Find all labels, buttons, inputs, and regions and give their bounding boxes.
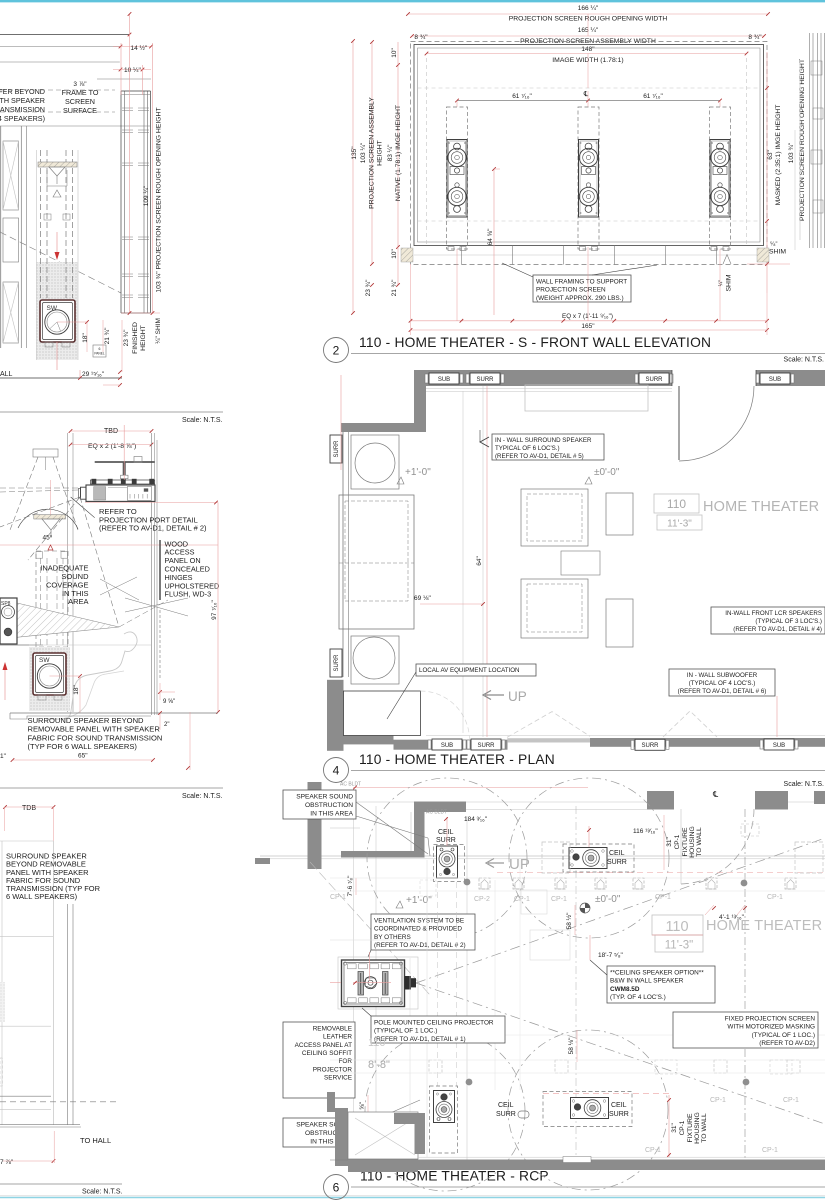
svg-text:℄: ℄ xyxy=(712,790,719,799)
svg-text:61 ⁷⁄₁₆": 61 ⁷⁄₁₆" xyxy=(643,93,663,100)
svg-text:116 ¹³⁄₁₆": 116 ¹³⁄₁₆" xyxy=(633,828,658,835)
svg-text:CEILING SOFFIT: CEILING SOFFIT xyxy=(302,1050,352,1057)
svg-text:TDB: TDB xyxy=(22,805,36,812)
svg-text:MASKED (2.35:1) IMGE HEIGHT: MASKED (2.35:1) IMGE HEIGHT xyxy=(775,105,782,206)
svg-text:CEIL: CEIL xyxy=(609,850,625,857)
svg-text:¼": ¼" xyxy=(719,280,725,287)
svg-text:TO WALL: TO WALL xyxy=(696,827,703,857)
svg-text:SURR: SURR xyxy=(641,743,659,749)
svg-text:SUB: SUB xyxy=(441,743,453,749)
svg-text:(TYP FOR 6 WALL SPEAKERS): (TYP FOR 6 WALL SPEAKERS) xyxy=(28,742,138,751)
svg-text:61 ⁷⁄₁₆": 61 ⁷⁄₁₆" xyxy=(512,93,532,100)
svg-text:HEIGHT: HEIGHT xyxy=(140,325,147,351)
svg-text:±0'-0": ±0'-0" xyxy=(595,894,621,905)
svg-text:64": 64" xyxy=(476,556,483,566)
svg-text:FABRIC FOR SOUND TRANSMISSION: FABRIC FOR SOUND TRANSMISSION xyxy=(28,733,163,742)
svg-text:(REFER TO AV-D1, DETAIL # 2): (REFER TO AV-D1, DETAIL # 2) xyxy=(99,524,207,533)
svg-text:AREA: AREA xyxy=(68,597,88,606)
svg-text:IN - WALL SURROUND SPEAKER: IN - WALL SURROUND SPEAKER xyxy=(495,437,592,444)
svg-text:18": 18" xyxy=(82,333,89,343)
svg-text:31": 31" xyxy=(671,1123,678,1133)
svg-text:Scale: N.T.S.: Scale: N.T.S. xyxy=(784,357,825,364)
svg-text:CP-1: CP-1 xyxy=(330,894,346,901)
svg-text:110 - HOME THEATER - S - FRONT: 110 - HOME THEATER - S - FRONT WALL ELEV… xyxy=(359,335,711,350)
svg-text:HOME THEATER: HOME THEATER xyxy=(706,918,822,934)
svg-text:CP-1: CP-1 xyxy=(674,834,681,849)
svg-text:HOUSING: HOUSING xyxy=(694,1112,701,1144)
svg-text:PROJECTOR: PROJECTOR xyxy=(313,1066,353,1073)
svg-text:6: 6 xyxy=(99,347,101,351)
svg-text:(TYPICAL OF 3 LOC'S.): (TYPICAL OF 3 LOC'S.) xyxy=(755,618,822,625)
svg-text:21 ¾": 21 ¾" xyxy=(391,279,398,296)
svg-text:(REFER TO AV-D1, DETAIL # 5): (REFER TO AV-D1, DETAIL # 5) xyxy=(495,453,584,460)
svg-text:165 ¼": 165 ¼" xyxy=(578,27,599,34)
svg-text:FINISHED: FINISHED xyxy=(132,322,139,354)
svg-text:FRAME TO: FRAME TO xyxy=(62,88,99,97)
svg-text:Scale: N.T.S.: Scale: N.T.S. xyxy=(182,793,223,800)
svg-text:SURR: SURR xyxy=(334,440,340,458)
svg-text:CP-1: CP-1 xyxy=(783,1097,799,1104)
svg-text:4: 4 xyxy=(333,764,340,778)
svg-text:SURR: SURR xyxy=(477,743,495,749)
svg-text:SURR: SURR xyxy=(496,1111,516,1118)
svg-text:LEATHER: LEATHER xyxy=(323,1034,352,1041)
svg-text:(TYPICAL OF 1 LOC.): (TYPICAL OF 1 LOC.) xyxy=(752,1032,815,1039)
svg-text:CP-2: CP-2 xyxy=(474,896,490,903)
svg-text:(REFER TO AV-D1, DETAIL # 4): (REFER TO AV-D1, DETAIL # 4) xyxy=(733,626,822,633)
svg-text:(REFER TO AV-D1, DETAIL # 2): (REFER TO AV-D1, DETAIL # 2) xyxy=(374,942,466,949)
svg-text:23 ¾": 23 ¾" xyxy=(365,279,372,296)
svg-text:110 - HOME THEATER - PLAN: 110 - HOME THEATER - PLAN xyxy=(359,752,555,767)
svg-text:CP-1: CP-1 xyxy=(710,1097,726,1104)
svg-text:103 ¼": 103 ¼" xyxy=(360,142,367,163)
svg-text:SW: SW xyxy=(47,305,58,312)
svg-text:+1'-0": +1'-0" xyxy=(405,467,431,478)
svg-text:14 ½": 14 ½" xyxy=(131,44,148,52)
svg-text:Scale: N.T.S.: Scale: N.T.S. xyxy=(82,1189,123,1196)
svg-text:FIXTURE: FIXTURE xyxy=(682,827,689,857)
svg-text:AC BLDT: AC BLDT xyxy=(426,810,447,816)
svg-text:8'-8": 8'-8" xyxy=(368,1059,390,1071)
svg-text:HOME THEATER: HOME THEATER xyxy=(703,499,819,515)
svg-text:7 ⅞": 7 ⅞" xyxy=(0,1159,14,1166)
svg-text:2: 2 xyxy=(333,344,340,358)
svg-text:HOUSING: HOUSING xyxy=(689,826,696,858)
svg-text:SURR: SURR xyxy=(645,377,663,383)
svg-text:UP: UP xyxy=(509,856,530,873)
svg-text:(TYP. OF 4 LOC'S.): (TYP. OF 4 LOC'S.) xyxy=(610,994,666,1001)
svg-text:166 ¼": 166 ¼" xyxy=(578,5,599,12)
svg-text:SURROUND SPEAKER BEYOND: SURROUND SPEAKER BEYOND xyxy=(28,716,145,725)
svg-text:21 ¾": 21 ¾" xyxy=(104,327,111,344)
svg-text:POLE MOUNTED CEILING PROJECTOR: POLE MOUNTED CEILING PROJECTOR xyxy=(374,1019,494,1026)
svg-text:COORDINATED & PROVIDED: COORDINATED & PROVIDED xyxy=(374,926,462,933)
svg-text:EQ x 7 (1'-11 ⁹⁄₁₆"): EQ x 7 (1'-11 ⁹⁄₁₆") xyxy=(562,313,613,320)
svg-text:LOCAL AV EQUIPMENT LOCATION: LOCAL AV EQUIPMENT LOCATION xyxy=(419,667,520,674)
svg-text:18": 18" xyxy=(73,685,80,695)
svg-text:OBSTRUCTION: OBSTRUCTION xyxy=(305,802,353,809)
svg-text:SURR: SURR xyxy=(476,377,494,383)
svg-text:Scale: N.T.S.: Scale: N.T.S. xyxy=(784,781,825,788)
svg-text:18'-7 ⁵⁄₈": 18'-7 ⁵⁄₈" xyxy=(598,952,624,959)
svg-text:64 ⅝": 64 ⅝" xyxy=(487,228,494,245)
svg-text:58 ½": 58 ½" xyxy=(565,912,573,929)
svg-text:CP-1: CP-1 xyxy=(514,896,530,903)
svg-text:97 ⁷⁄₁₆": 97 ⁷⁄₁₆" xyxy=(211,600,218,620)
svg-text:CEIL: CEIL xyxy=(498,1102,514,1109)
svg-text:110: 110 xyxy=(667,497,686,511)
svg-text:SUB: SUB xyxy=(769,377,781,383)
svg-text:ITH SPEAKER: ITH SPEAKER xyxy=(0,96,45,105)
svg-text:VENTILATION SYSTEM TO BE: VENTILATION SYSTEM TO BE xyxy=(374,917,464,924)
svg-text:184 ³⁄₁₆": 184 ³⁄₁₆" xyxy=(464,816,488,823)
svg-text:SURFACE: SURFACE xyxy=(63,106,97,115)
svg-text:10 ¼": 10 ¼" xyxy=(124,67,141,74)
svg-text:SURR: SURR xyxy=(609,1111,629,1118)
svg-text:EQ x 2 (1'-8 ⅞"): EQ x 2 (1'-8 ⅞") xyxy=(88,443,136,450)
svg-text:IN - WALL SUBWOOFER: IN - WALL SUBWOOFER xyxy=(687,672,758,679)
svg-text:6 WALL SPEAKERS): 6 WALL SPEAKERS) xyxy=(6,892,78,901)
svg-text:(REFER TO AV-D2): (REFER TO AV-D2) xyxy=(759,1040,815,1047)
svg-text:HEIGHT: HEIGHT xyxy=(377,140,384,166)
svg-text:29 ¹⁵⁄₁₆": 29 ¹⁵⁄₁₆" xyxy=(82,371,105,378)
svg-text:TBD: TBD xyxy=(104,428,118,435)
svg-text:CP-1: CP-1 xyxy=(645,1147,661,1154)
svg-text:165": 165" xyxy=(581,323,595,330)
svg-text:IN THIS AREA: IN THIS AREA xyxy=(310,810,353,817)
svg-text:REMOVABLE PANEL WITH SPEAKER: REMOVABLE PANEL WITH SPEAKER xyxy=(28,725,161,734)
svg-text:11'-3": 11'-3" xyxy=(665,940,693,952)
svg-text:B&W IN WALL SPEAKER: B&W IN WALL SPEAKER xyxy=(610,978,684,985)
svg-text:CEIL: CEIL xyxy=(438,829,454,836)
svg-text:PROJECTION SCREEN: PROJECTION SCREEN xyxy=(536,287,606,294)
svg-text:(TYPICAL OF 4 LOC'S.): (TYPICAL OF 4 LOC'S.) xyxy=(689,680,756,687)
svg-text:CP-1: CP-1 xyxy=(679,1120,686,1135)
svg-text:SHIM: SHIM xyxy=(726,274,733,291)
svg-text:TYPICAL OF 6 LOC'S.): TYPICAL OF 6 LOC'S.) xyxy=(495,445,560,452)
svg-text:63": 63" xyxy=(767,150,774,160)
svg-text:1": 1" xyxy=(0,753,7,760)
svg-text:CP-1: CP-1 xyxy=(762,1147,778,1154)
svg-text:OFER BEYOND: OFER BEYOND xyxy=(0,87,45,96)
svg-text:135": 135" xyxy=(351,146,358,160)
svg-text:10": 10" xyxy=(391,249,398,259)
svg-text:**CEILING SPEAKER OPTION**: **CEILING SPEAKER OPTION** xyxy=(610,969,704,976)
svg-text:SURR: SURR xyxy=(607,859,627,866)
svg-text:SPEAKER SOUND: SPEAKER SOUND xyxy=(296,794,353,801)
svg-text:CP-1: CP-1 xyxy=(767,894,783,901)
svg-text:CWM8.5D: CWM8.5D xyxy=(610,986,640,993)
svg-text:CP-1: CP-1 xyxy=(655,894,671,901)
svg-text:AC BLDT: AC BLDT xyxy=(340,782,361,788)
svg-text:(REFER TO AV-D1, DETAIL # 6): (REFER TO AV-D1, DETAIL # 6) xyxy=(678,688,767,695)
svg-text:PANEL: PANEL xyxy=(94,352,104,356)
svg-text:FLUSH, WD-3: FLUSH, WD-3 xyxy=(165,590,212,599)
svg-text:6: 6 xyxy=(333,1181,340,1195)
svg-text:¼" SHIM: ¼" SHIM xyxy=(155,318,162,344)
svg-text:SP8: SP8 xyxy=(1,601,11,607)
svg-text:109 ¼": 109 ¼" xyxy=(143,185,150,206)
svg-text:110: 110 xyxy=(665,919,688,935)
svg-text:FOR: FOR xyxy=(339,1058,353,1065)
svg-text:NATIVE (1.78:1) IMGE HEIGHT: NATIVE (1.78:1) IMGE HEIGHT xyxy=(395,105,402,201)
svg-text:58 ⅛": 58 ⅛" xyxy=(568,1037,575,1054)
svg-text:69 ⅛": 69 ⅛" xyxy=(414,595,431,602)
svg-text:PROJECTION SCREEN ASSEMBLY: PROJECTION SCREEN ASSEMBLY xyxy=(369,97,376,209)
svg-text:SURR: SURR xyxy=(436,837,456,844)
svg-text:9 ⅝": 9 ⅝" xyxy=(163,699,175,705)
svg-text:(REFER TO AV-D1, DETAIL # 1): (REFER TO AV-D1, DETAIL # 1) xyxy=(374,1036,466,1043)
svg-text:±0'-0": ±0'-0" xyxy=(594,467,620,478)
svg-text:⁵⁄₈": ⁵⁄₈" xyxy=(770,241,777,248)
svg-text:SERVICE: SERVICE xyxy=(324,1075,352,1082)
svg-text:SUB: SUB xyxy=(438,377,450,383)
svg-text:110: 110 xyxy=(368,1037,386,1049)
svg-text:TO WALL: TO WALL xyxy=(701,1113,708,1143)
svg-text:SURR: SURR xyxy=(334,654,340,672)
svg-text:8 ¾": 8 ¾" xyxy=(414,34,428,41)
svg-text:SW: SW xyxy=(39,657,50,664)
svg-text:103 ¾": 103 ¾" xyxy=(788,142,795,163)
svg-text:8 ¾": 8 ¾" xyxy=(748,34,762,41)
svg-text:TO HALL: TO HALL xyxy=(80,1136,111,1145)
svg-text:SUB: SUB xyxy=(773,743,785,749)
svg-text:WALL FRAMING TO SUPPORT: WALL FRAMING TO SUPPORT xyxy=(536,278,627,285)
svg-text:CP-1: CP-1 xyxy=(551,896,567,903)
svg-text:ALL: ALL xyxy=(0,371,13,378)
svg-text:(TYPICAL OF 1 LOC.): (TYPICAL OF 1 LOC.) xyxy=(374,1028,437,1035)
svg-text:65": 65" xyxy=(78,753,88,760)
svg-text:REMOVABLE: REMOVABLE xyxy=(313,1025,352,1032)
svg-text:(WEIGHT APPROX. 290 LBS.): (WEIGHT APPROX. 290 LBS.) xyxy=(536,295,624,302)
svg-text:CEIL: CEIL xyxy=(611,1102,627,1109)
svg-text:103 ¾" PROJECTION SCREEN ROUG: 103 ¾" PROJECTION SCREEN ROUGH OPENING H… xyxy=(156,107,163,292)
svg-text:2": 2" xyxy=(164,722,169,728)
svg-text:SHIM: SHIM xyxy=(769,249,786,256)
svg-text:ACCESS PANEL AT: ACCESS PANEL AT xyxy=(295,1042,353,1049)
svg-text:10": 10" xyxy=(391,48,398,58)
svg-text:FIXTURE: FIXTURE xyxy=(687,1113,694,1143)
svg-text:FIXED PROJECTION SCREEN: FIXED PROJECTION SCREEN xyxy=(725,1015,816,1022)
svg-text:RANSMISSION: RANSMISSION xyxy=(0,105,45,114)
svg-text:4 SPEAKERS): 4 SPEAKERS) xyxy=(0,114,45,123)
svg-text:3 ⅞": 3 ⅞" xyxy=(73,81,87,88)
svg-text:UP: UP xyxy=(508,689,527,704)
svg-text:+1'-0": +1'-0" xyxy=(406,895,432,906)
svg-text:31": 31" xyxy=(666,837,673,847)
svg-text:148": 148" xyxy=(581,46,595,53)
svg-text:SCREEN: SCREEN xyxy=(65,97,95,106)
svg-text:Scale: N.T.S.: Scale: N.T.S. xyxy=(182,417,223,424)
svg-text:IN-WALL FRONT LCR SPEAKERS: IN-WALL FRONT LCR SPEAKERS xyxy=(725,610,822,617)
svg-text:11'-3": 11'-3" xyxy=(667,519,692,530)
svg-text:23 ¾": 23 ¾" xyxy=(123,329,130,346)
svg-text:WITH MOTORIZED MASKING: WITH MOTORIZED MASKING xyxy=(727,1024,815,1031)
svg-text:83 ¼": 83 ¼" xyxy=(387,144,394,161)
